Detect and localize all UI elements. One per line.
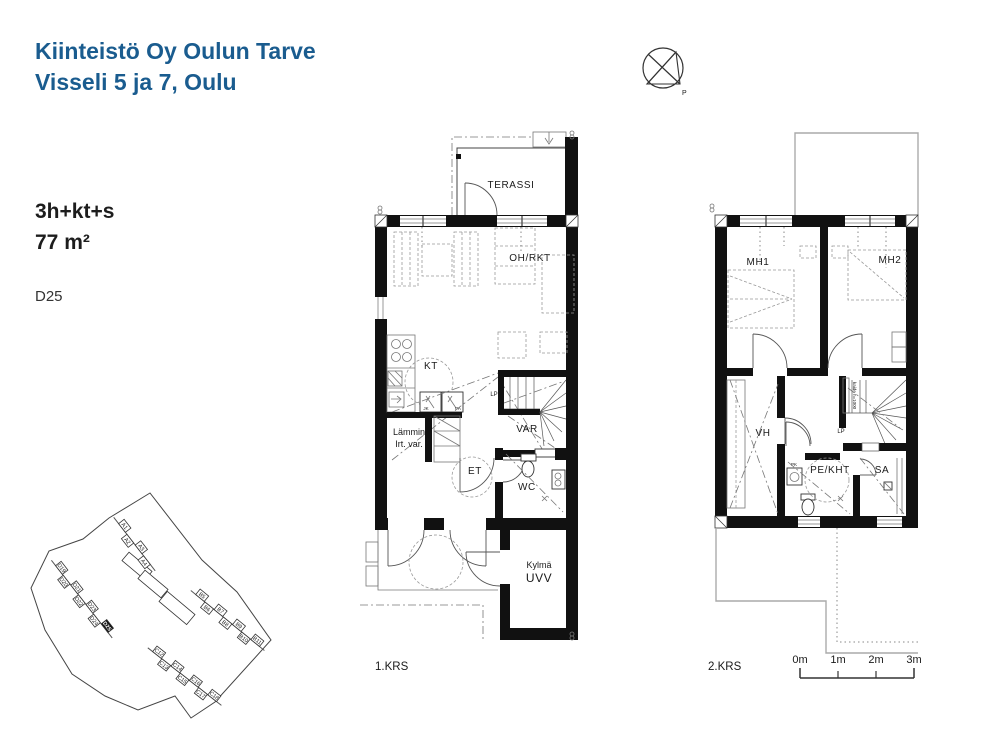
corner-marks [710, 204, 714, 212]
site-unit-D23: D23 [86, 600, 99, 613]
site-unit-B9: B9 [232, 619, 245, 632]
site-unit-B7: B7 [214, 604, 227, 617]
window [845, 216, 895, 226]
site-unit-A3: A3 [135, 541, 148, 554]
site-unit-B11: B11 [251, 634, 264, 647]
floor2-label: 2.KRS [708, 661, 742, 673]
floor1-plan: TERASSI [358, 120, 598, 680]
site-boundary [31, 493, 271, 718]
stair-lp-label: LP [837, 429, 844, 435]
floor1-cold-storage: Kylmä UVV [500, 528, 578, 640]
page-title: Kiinteistö Oy Oulun Tarve Visseli 5 ja 7… [35, 36, 316, 98]
sink [388, 371, 402, 386]
site-unit-D24: D24 [88, 614, 101, 627]
scale-3m: 3m [906, 654, 921, 666]
title-line-1: Kiinteistö Oy Oulun Tarve [35, 36, 316, 67]
site-unit-C17: C17 [194, 688, 207, 701]
floor1-porch [366, 530, 500, 590]
site-unit-C13: C13 [157, 659, 170, 672]
site-unit-A1: A1 [118, 519, 131, 532]
site-unit-B6: B6 [200, 602, 213, 615]
apartment-area: 77 m² [35, 227, 114, 258]
site-unit-B5: B5 [195, 589, 208, 602]
floor1-lot-line [360, 605, 483, 642]
window [375, 297, 387, 319]
bedroom2-label: MH2 [879, 255, 902, 266]
roof-eave-line [795, 133, 918, 215]
cold-storage-line2: UVV [526, 571, 552, 585]
site-map: A1A2A3A4D19D20D21D22D23D24D25B5B6B7B8B9B… [25, 478, 280, 733]
window [497, 216, 547, 226]
window [740, 216, 792, 226]
floor2-patio [716, 528, 918, 653]
stair-lp-label: LP [490, 392, 497, 398]
floor2-sauna: SA [853, 458, 904, 516]
site-unit-A2: A2 [121, 534, 134, 547]
site-unit-D20: D20 [57, 575, 70, 588]
site-unit-C15: C15 [176, 673, 189, 686]
title-line-2: Visseli 5 ja 7, Oulu [35, 67, 316, 98]
scale-1m: 1m [830, 654, 845, 666]
floor1-wc: WC [495, 448, 568, 520]
site-extra-building [159, 591, 195, 624]
site-unit-C16: C16 [189, 675, 202, 688]
site-unit-D22: D22 [73, 595, 86, 608]
cold-storage-line1: Kylmä [526, 560, 551, 570]
terrace-label: TERASSI [488, 180, 535, 191]
site-extra-buildings [122, 552, 195, 624]
floor2-bathroom: PE/KHT PK [783, 422, 850, 515]
site-unit-D21: D21 [70, 581, 83, 594]
site-unit-C18: C18 [208, 689, 221, 702]
site-unit-D25: D25 [101, 620, 114, 633]
apartment-specs: 3h+kt+s 77 m² [35, 196, 114, 258]
bathroom-label: PE/KHT [810, 465, 850, 476]
apartment-layout: 3h+kt+s [35, 196, 114, 227]
site-unit-B8: B8 [219, 617, 232, 630]
window [400, 216, 446, 226]
fridge-label: JK [423, 406, 428, 411]
entry-label: ET [468, 466, 482, 477]
floor2-closet: VH [727, 376, 811, 516]
washing-machine: PK [787, 462, 802, 485]
floor1-stairs: LP VAR [490, 370, 568, 457]
warm-storage-line1: Lämmin [393, 427, 425, 437]
scale-0m: 0m [792, 654, 807, 666]
railing-note: kaide h=1000 [852, 382, 857, 410]
scale-bar: 0m 1m 2m 3m [792, 645, 932, 690]
site-unit-C14: C14 [171, 660, 184, 673]
toilet [521, 454, 536, 477]
bedroom1-label: MH1 [747, 257, 770, 268]
site-unit-B10: B10 [237, 632, 250, 645]
floor2-plan: MH1 MH2 VH kaide h=1000 [700, 118, 935, 683]
wc-label: WC [518, 482, 536, 493]
window [877, 517, 902, 527]
floor1-terrace: TERASSI [452, 132, 578, 215]
window [798, 517, 820, 527]
floor2-bedrooms: MH1 MH2 [727, 227, 906, 376]
warm-storage-line2: Irt. var. [395, 439, 423, 449]
winder-treads [540, 380, 566, 446]
toilet [801, 494, 815, 515]
scale-2m: 2m [868, 654, 883, 666]
sauna-label: SA [875, 465, 890, 476]
site-unit-D19: D19 [55, 561, 68, 574]
floor1-label: 1.KRS [375, 661, 409, 673]
north-arrow-icon: P [638, 42, 694, 102]
floor1-entry: ET [434, 416, 494, 566]
unit-id: D25 [35, 288, 63, 305]
floor2-stairs: kaide h=1000 LP [837, 376, 906, 451]
storage-label: VAR [516, 424, 538, 435]
kitchen-label: KT [424, 361, 438, 372]
floor1-living: OH/RKT [394, 227, 574, 358]
floor1-warm-storage: Lämmin Irt. var. [387, 412, 462, 462]
washer-label: PK [791, 462, 797, 467]
washbasin [552, 470, 565, 489]
site-extra-building [138, 570, 168, 598]
compass-north-label: P [682, 90, 687, 97]
site-building-rows: A1A2A3A4D19D20D21D22D23D24D25B5B6B7B8B9B… [51, 517, 264, 705]
site-unit-C12: C12 [152, 646, 165, 659]
